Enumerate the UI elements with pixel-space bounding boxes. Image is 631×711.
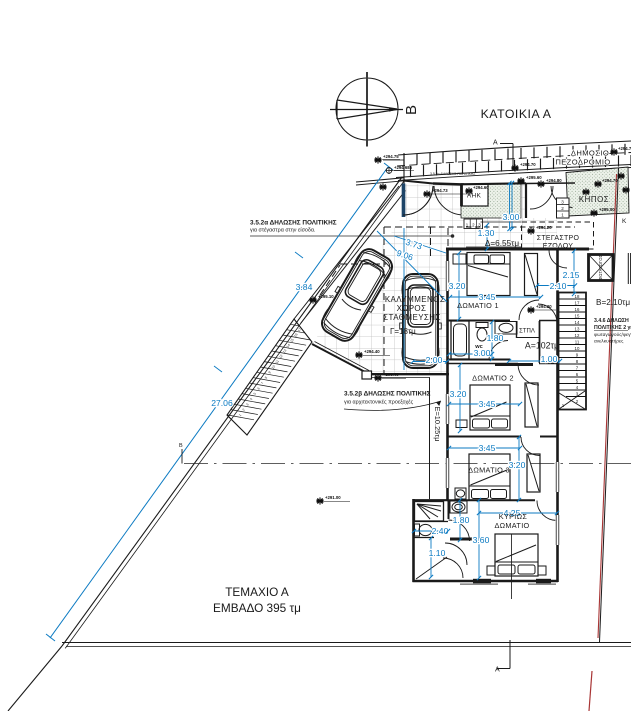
svg-text:Δ=6.55τμ: Δ=6.55τμ xyxy=(485,239,519,248)
svg-text:wc: wc xyxy=(474,344,482,350)
svg-text:3.84: 3.84 xyxy=(296,282,313,292)
svg-text:+295.40: +295.40 xyxy=(383,372,399,377)
svg-text:27.06: 27.06 xyxy=(211,398,233,408)
svg-text:ΚΗΠΟΣ: ΚΗΠΟΣ xyxy=(579,195,609,204)
svg-text:3.5.2α ΔΗΛΩΣΗΣ ΠΟΛΙΤΙΚΗΣ: 3.5.2α ΔΗΛΩΣΗΣ ΠΟΛΙΤΙΚΗΣ xyxy=(430,172,475,176)
svg-text:ΣΤΕΓΑΣΤΡΟ: ΣΤΕΓΑΣΤΡΟ xyxy=(537,235,580,242)
svg-text:ΣΤΠΛ: ΣΤΠΛ xyxy=(519,329,535,335)
svg-text:+294.76: +294.76 xyxy=(618,146,631,151)
svg-text:ανελκυστήρες: ανελκυστήρες xyxy=(594,338,624,345)
svg-text:2: 2 xyxy=(561,206,564,211)
svg-text:+294.75: +294.75 xyxy=(383,154,399,159)
svg-text:Γ=18τμ: Γ=18τμ xyxy=(390,327,416,336)
svg-text:17: 17 xyxy=(575,300,580,305)
svg-text:3.45: 3.45 xyxy=(479,443,496,453)
svg-text:2.15: 2.15 xyxy=(563,270,580,280)
svg-text:1: 1 xyxy=(561,213,564,218)
svg-text:ΚΑΤΟΙΚΙΑ Α: ΚΑΤΟΙΚΙΑ Α xyxy=(481,107,552,121)
svg-text:+295.60: +295.60 xyxy=(526,175,542,180)
svg-text:2.10: 2.10 xyxy=(550,281,567,291)
svg-text:10: 10 xyxy=(575,346,580,351)
svg-text:ΠΟΛΙΤΙΚΗΣ 2 για: ΠΟΛΙΤΙΚΗΣ 2 για xyxy=(594,325,631,331)
svg-text:1.30: 1.30 xyxy=(478,228,495,238)
svg-text:ΤΕΜΑΧΙΟ Α: ΤΕΜΑΧΙΟ Α xyxy=(225,585,289,599)
svg-text:για αρχιτεκτονικές προεξοχές: για αρχιτεκτονικές προεξοχές xyxy=(344,399,414,406)
svg-text:3.5.2β ΔΗΛΩΣΗΣ ΠΟΛΙΤΙΚΗΣ: 3.5.2β ΔΗΛΩΣΗΣ ΠΟΛΙΤΙΚΗΣ xyxy=(344,391,431,398)
svg-text:ΠΕΖΟΔΡΟΜΙΟ: ΠΕΖΟΔΡΟΜΙΟ xyxy=(555,158,610,167)
svg-text:Ε=10.25τμ: Ε=10.25τμ xyxy=(433,407,442,442)
svg-text:11: 11 xyxy=(575,339,580,344)
svg-text:B: B xyxy=(179,443,183,449)
svg-text:+294.80: +294.80 xyxy=(546,178,562,183)
svg-text:+294.70: +294.70 xyxy=(602,178,618,183)
svg-text:1.10: 1.10 xyxy=(429,548,446,558)
svg-text:για στέγαστρα στην είσοδα.: για στέγαστρα στην είσοδα. xyxy=(250,227,316,234)
svg-text:+294.70: +294.70 xyxy=(520,162,536,167)
svg-text:ΧΩΡΟΣ: ΧΩΡΟΣ xyxy=(397,304,427,313)
svg-text:3.45: 3.45 xyxy=(479,399,496,409)
svg-text:+294.20: +294.20 xyxy=(536,225,552,230)
svg-text:18: 18 xyxy=(575,294,580,299)
svg-text:3.20: 3.20 xyxy=(509,460,526,470)
svg-text:ΦΩΤΑΓΩΓΟΣ: ΦΩΤΑΓΩΓΟΣ xyxy=(598,255,603,281)
svg-text:+294.40: +294.40 xyxy=(364,349,380,354)
svg-text:ΕΜΒΑΔΟ 395 τμ: ΕΜΒΑΔΟ 395 τμ xyxy=(213,601,301,615)
svg-text:15: 15 xyxy=(575,313,580,318)
svg-text:A: A xyxy=(495,667,500,674)
svg-text:+295.10: +295.10 xyxy=(318,294,334,299)
svg-text:+294.73: +294.73 xyxy=(432,188,448,193)
svg-text:ΣΤΑΘΜΕΥΣΗΣ: ΣΤΑΘΜΕΥΣΗΣ xyxy=(383,313,441,322)
svg-text:+294.20: +294.20 xyxy=(536,304,552,309)
svg-text:3.00: 3.00 xyxy=(503,212,520,222)
svg-text:φωταγωγούς/φεγγίτες: φωταγωγούς/φεγγίτες xyxy=(594,331,631,338)
svg-text:2.40: 2.40 xyxy=(432,526,449,536)
svg-text:ΔΩΜΑΤΙΟ 2: ΔΩΜΑΤΙΟ 2 xyxy=(472,374,514,383)
svg-text:+295.00: +295.00 xyxy=(599,207,615,212)
svg-text:ΔΗΜΟΣΙΟ: ΔΗΜΟΣΙΟ xyxy=(571,149,609,158)
svg-text:A: A xyxy=(493,140,498,147)
svg-text:+291.00: +291.00 xyxy=(325,495,341,500)
svg-text:+294.60: +294.60 xyxy=(473,185,489,190)
svg-text:Β=2.10τμ: Β=2.10τμ xyxy=(596,298,630,307)
svg-text:12: 12 xyxy=(575,333,580,338)
svg-text:+294.685: +294.685 xyxy=(394,165,413,170)
svg-text:16: 16 xyxy=(575,307,580,312)
svg-text:ΔΩΜΑΤΙΟ 3: ΔΩΜΑΤΙΟ 3 xyxy=(468,466,510,475)
svg-text:ΚΑΛΥΜΜΕΝΟΣ: ΚΑΛΥΜΜΕΝΟΣ xyxy=(385,295,445,304)
svg-text:ΔΩΜΑΤΙΟ: ΔΩΜΑΤΙΟ xyxy=(495,521,530,530)
svg-text:Β: Β xyxy=(403,105,420,115)
svg-text:1.80: 1.80 xyxy=(487,333,504,343)
svg-text:ΚΥΡΙΩΣ: ΚΥΡΙΩΣ xyxy=(499,512,528,521)
svg-text:3.4.6 ΔΗΛΩΣΗ: 3.4.6 ΔΗΛΩΣΗ xyxy=(594,318,629,324)
svg-text:Α=102τμ: Α=102τμ xyxy=(525,341,559,351)
svg-text:1.00: 1.00 xyxy=(541,354,558,364)
svg-text:13: 13 xyxy=(575,326,580,331)
svg-text:3.20: 3.20 xyxy=(449,281,466,291)
svg-text:2.00: 2.00 xyxy=(426,355,443,365)
svg-text:3: 3 xyxy=(561,200,564,205)
svg-text:3.60: 3.60 xyxy=(473,535,490,545)
svg-text:14: 14 xyxy=(575,320,580,325)
svg-text:Κ: Κ xyxy=(622,218,627,225)
svg-text:ΔΩΜΑΤΙΟ 1: ΔΩΜΑΤΙΟ 1 xyxy=(457,301,499,310)
svg-text:3.5.2α ΔΗΛΩΣΗΣ ΠΟΛΙΤΙΚΗΣ: 3.5.2α ΔΗΛΩΣΗΣ ΠΟΛΙΤΙΚΗΣ xyxy=(250,220,337,227)
svg-text:1.80: 1.80 xyxy=(453,515,470,525)
svg-text:3.20: 3.20 xyxy=(450,389,467,399)
